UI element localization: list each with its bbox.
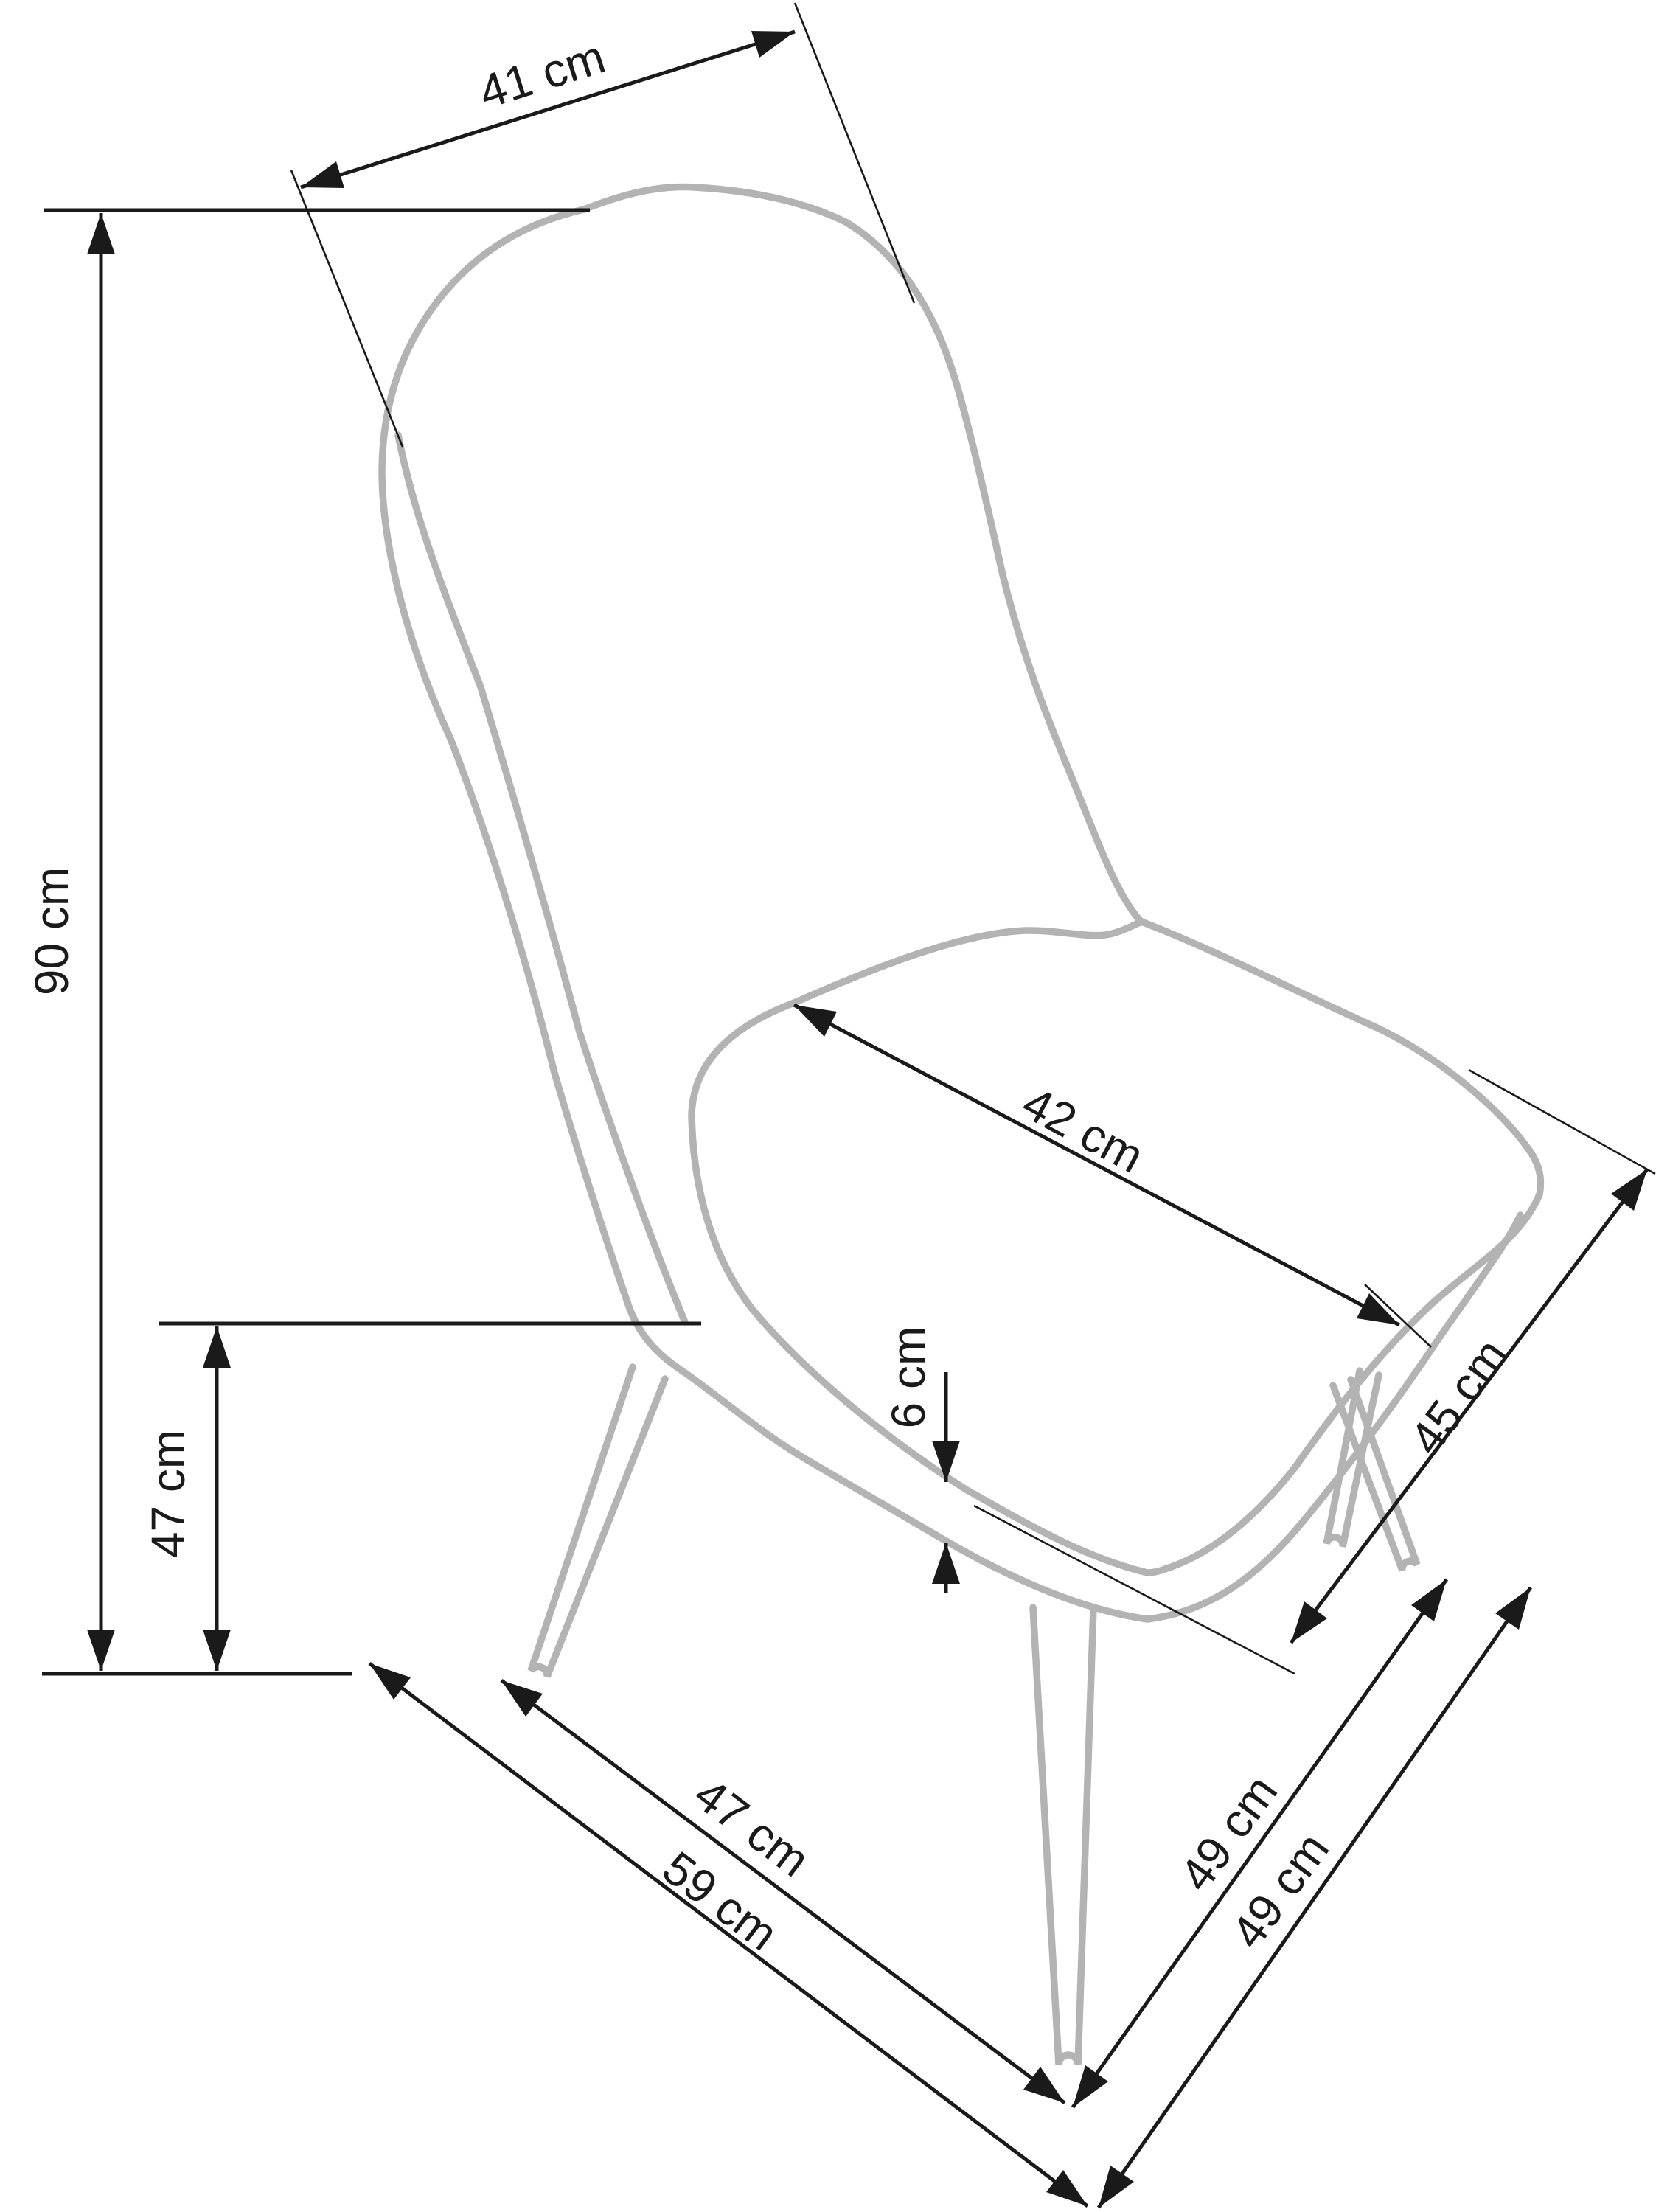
svg-text:90 cm: 90 cm: [25, 867, 78, 995]
svg-text:45 cm: 45 cm: [1399, 1329, 1518, 1464]
svg-text:47 cm: 47 cm: [142, 1430, 195, 1558]
svg-text:6 cm: 6 cm: [882, 1326, 935, 1429]
svg-text:42 cm: 42 cm: [1014, 1076, 1152, 1183]
svg-text:41 cm: 41 cm: [473, 29, 611, 119]
